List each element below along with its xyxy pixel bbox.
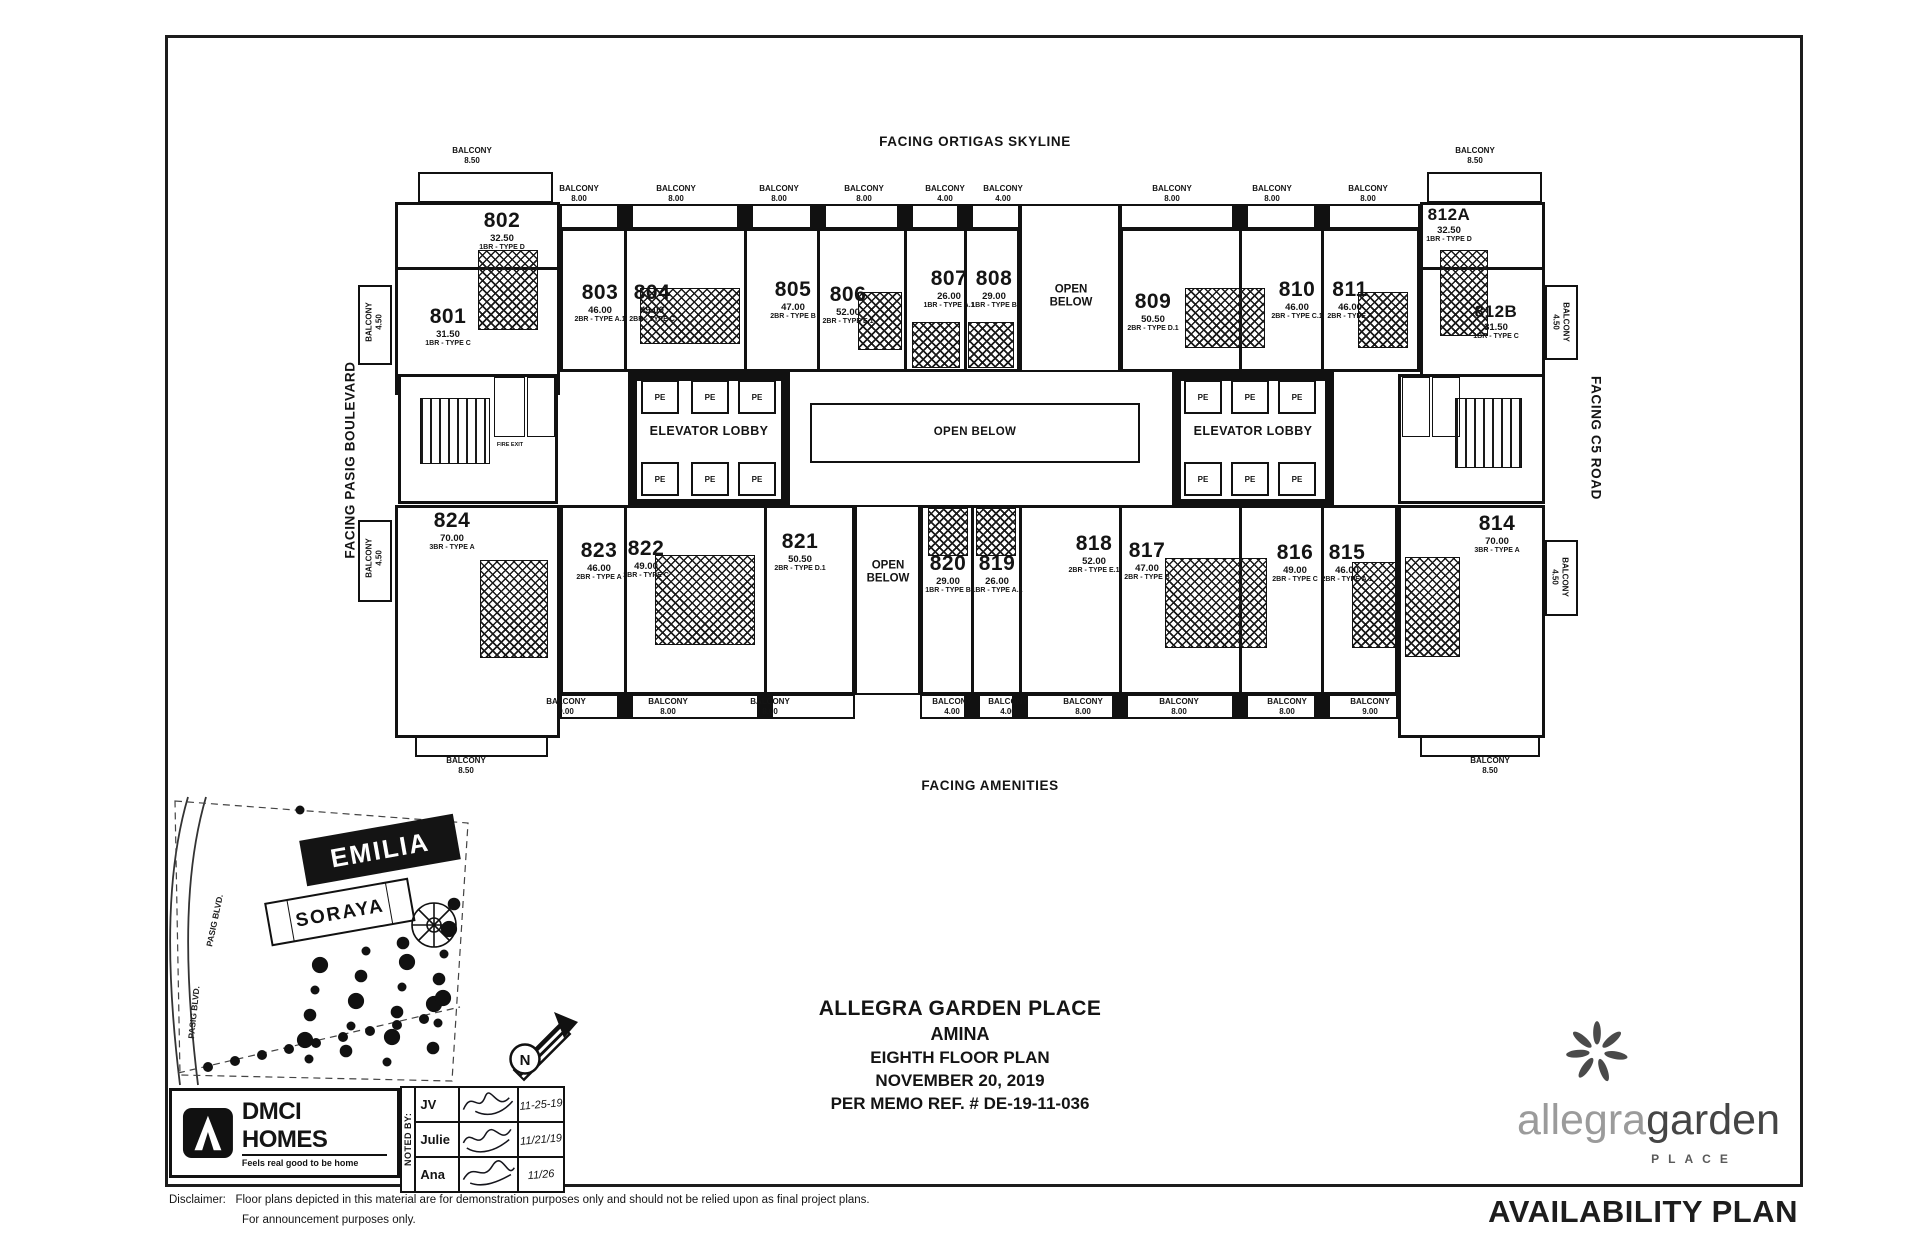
unit-divider-wall [764, 505, 767, 695]
tree-dot [311, 986, 320, 995]
balcony-word: BALCONY [546, 697, 586, 707]
unit-label-814: 81470.003BR - TYPE A [1474, 513, 1519, 555]
balcony-word: BALCONY [1455, 146, 1495, 156]
unit-area-sqm: 32.50 [1437, 225, 1461, 236]
unit-number: 805 [775, 279, 812, 300]
unit-label-823: 82346.002BR - TYPE A [576, 540, 621, 582]
unit-number: 809 [1135, 291, 1172, 312]
balcony-area-value: 8.00 [1152, 194, 1192, 204]
elevator-pe-cell-6: PE [1184, 380, 1222, 414]
noted-date: 11/21/19 [516, 1120, 565, 1159]
balcony-area-value: 8.00 [844, 194, 884, 204]
brand-wordmark: allegragarden [1400, 1096, 1786, 1145]
open-below-void-bottom [855, 505, 920, 695]
balcony-area-value: 8.00 [750, 707, 790, 717]
unit-area-sqm: 26.00 [985, 576, 1009, 587]
project-name: ALLEGRA GARDEN PLACE [750, 996, 1170, 1022]
balcony-word: BALCONY [1348, 184, 1388, 194]
unit-label-806: 80652.002BR - TYPE E.1 [823, 284, 874, 326]
unit-label-808: 80829.001BR - TYPE B [971, 268, 1017, 310]
balcony-area-value: 8.00 [1063, 707, 1103, 717]
facing-top-label: FACING ORTIGAS SKYLINE [879, 134, 1071, 149]
open-below-center-label: OPEN BELOW [934, 426, 1017, 438]
wall-pier [1314, 204, 1330, 228]
wall-pier [1232, 204, 1248, 228]
disclaimer-label: Disclaimer: [169, 1194, 226, 1206]
fixture-hatch [1185, 288, 1265, 348]
brand-allegra: allegra [1517, 1096, 1646, 1144]
unit-area-sqm: 49.00 [1283, 565, 1307, 576]
unit-label-817: 81747.002BR - TYPE B [1124, 540, 1170, 582]
balcony-strip-bottom-left-wing [560, 694, 855, 719]
unit-type: 2BR - TYPE A.1 [1321, 576, 1372, 584]
balcony-label-bottom-10: BALCONY8.50 [1470, 756, 1510, 775]
balcony-label-top-3: BALCONY8.00 [759, 184, 799, 203]
unit-label-804: 80449.002BR - TYPE C [629, 282, 675, 324]
unit-area-sqm: 70.00 [1485, 536, 1509, 547]
balcony-strip-814 [1420, 736, 1540, 757]
balcony-area-value: 8.50 [1455, 156, 1495, 166]
facing-right-label: FACING C5 ROAD [1589, 376, 1604, 500]
road-label: PASIG BLVD. [186, 985, 201, 1039]
tree-dot [296, 806, 305, 815]
unit-label-810: 81046.002BR - TYPE C.1 [1271, 279, 1322, 321]
unit-number: 804 [634, 282, 671, 303]
unit-type: 2BR - TYPE B [1124, 574, 1170, 582]
tree-dot [312, 957, 328, 973]
unit-label-818: 81852.002BR - TYPE E.1 [1069, 533, 1120, 575]
balcony-label-top-0: BALCONY8.50 [452, 146, 492, 165]
balcony-word: BALCONY [1159, 697, 1199, 707]
dmci-name: DMCI HOMES [242, 1098, 387, 1156]
tree-dot [297, 1032, 313, 1048]
balcony-label-top-5: BALCONY4.00 [925, 184, 965, 203]
balcony-strip-824 [415, 736, 548, 757]
balcony-label-bottom-1: BALCONY9.00 [546, 697, 586, 716]
unit-number: 822 [628, 538, 665, 559]
dmci-logo-block: DMCI HOMES Feels real good to be home [169, 1088, 400, 1178]
open-below-top-label: OPEN BELOW [1050, 284, 1093, 309]
balcony-area-value: 4.00 [932, 707, 972, 717]
balcony-word: BALCONY [452, 146, 492, 156]
balcony-label-bottom-0: BALCONY8.50 [446, 756, 486, 775]
unit-type: 1BR - TYPE C [1473, 333, 1519, 341]
balcony-word: BALCONY [1152, 184, 1192, 194]
stair-hatch [1455, 398, 1522, 468]
elevator-pe-cell-8: PE [1278, 380, 1316, 414]
wall-pier [1232, 695, 1248, 718]
balcony-label-top-10: BALCONY8.50 [1455, 146, 1495, 165]
unit-area-sqm: 46.00 [1338, 302, 1362, 313]
balcony-area-value: 4.00 [983, 194, 1023, 204]
unit-label-802: 80232.501BR - TYPE D [479, 210, 525, 252]
unit-number: 820 [930, 553, 967, 574]
unit-number: 807 [931, 268, 968, 289]
balcony-area-value: 8.50 [452, 156, 492, 166]
balcony-area-value: 8.00 [1252, 194, 1292, 204]
balcony-area-value: 8.00 [1348, 194, 1388, 204]
balcony-strip-802 [418, 172, 553, 203]
balcony-word: BALCONY [1350, 697, 1390, 707]
balcony-area-value: 8.00 [1267, 707, 1307, 717]
unit-label-822: 82249.002BR - TYPE C [623, 538, 669, 580]
balcony-word: BALCONY [983, 184, 1023, 194]
unit-number: 812A [1428, 206, 1471, 223]
unit-type: 1BR - TYPE C [425, 340, 471, 348]
noted-name: Julie [415, 1122, 459, 1157]
unit-number: 812B [1475, 303, 1518, 320]
unit-label-816: 81649.002BR - TYPE C [1272, 542, 1318, 584]
balcony-word: BALCONY [932, 697, 972, 707]
unit-type: 2BR - TYPE E.1 [823, 318, 874, 326]
balcony-label-top-6: BALCONY4.00 [983, 184, 1023, 203]
tree-dot [257, 1050, 267, 1060]
balcony-word: BALCONY [1063, 697, 1103, 707]
dmci-tagline: Feels real good to be home [242, 1158, 387, 1168]
elevator-pe-cell-3: PE [641, 462, 679, 496]
stair-hatch [420, 398, 490, 464]
unit-type: 2BR - TYPE C [629, 316, 675, 324]
balcony-area-value: 8.00 [559, 194, 599, 204]
wall-pier [617, 695, 633, 718]
unit-divider-wall [904, 228, 907, 372]
unit-label-805: 80547.002BR - TYPE B [770, 279, 816, 321]
unit-number: 821 [782, 531, 819, 552]
elevator-pe-cell-5: PE [738, 462, 776, 496]
noted-date: 11-25-19 [516, 1085, 565, 1124]
unit-area-sqm: 46.00 [587, 563, 611, 574]
unit-number: 814 [1479, 513, 1516, 534]
unit-area-sqm: 47.00 [781, 302, 805, 313]
unit-area-sqm: 70.00 [440, 533, 464, 544]
tree-dot [398, 983, 407, 992]
fixture-hatch [478, 250, 538, 330]
unit-label-811: 81146.002BR - TYPE A [1327, 279, 1372, 321]
fixture-hatch [928, 508, 968, 556]
road-line [188, 797, 206, 1085]
dmci-logo-icon [182, 1106, 234, 1160]
balcony-word: BALCONY [750, 697, 790, 707]
tree-dot [440, 950, 449, 959]
fire-exit-label: FIRE EXIT [492, 442, 528, 448]
allegra-leaf-icon [1565, 1020, 1629, 1084]
wall-pier [957, 204, 973, 228]
unit-number: 803 [582, 282, 619, 303]
tree-dot [383, 1058, 392, 1067]
road-label: PASIG BLVD. [204, 893, 225, 947]
tree-dot [435, 990, 451, 1006]
balcony-area-value: 4.00 [988, 707, 1028, 717]
unit-label-812A: 812A32.501BR - TYPE D [1426, 206, 1472, 244]
balcony-word: BALCONY [446, 756, 486, 766]
balcony-label-side-0: BALCONY4.50 [365, 302, 384, 342]
facing-left-label: FACING PASIG BOULEVARD [343, 361, 358, 558]
tree-dot [311, 1038, 321, 1048]
unit-number: 818 [1076, 533, 1113, 554]
balcony-strip-812a [1427, 172, 1542, 203]
balcony-label-top-4: BALCONY8.00 [844, 184, 884, 203]
unit-label-812B: 812B31.501BR - TYPE C [1473, 303, 1519, 341]
balcony-label-bottom-3: BALCONY8.00 [750, 697, 790, 716]
balcony-word: BALCONY [988, 697, 1028, 707]
balcony-label-bottom-9: BALCONY9.00 [1350, 697, 1390, 716]
unit-area-sqm: 46.00 [1335, 565, 1359, 576]
unit-number: 819 [979, 553, 1016, 574]
balcony-label-top-2: BALCONY8.00 [656, 184, 696, 203]
unit-type: 1BR - TYPE D [479, 244, 525, 252]
plan-date: NOVEMBER 20, 2019 [750, 1069, 1170, 1092]
balcony-word: BALCONY [1561, 302, 1571, 342]
fixture-hatch [912, 322, 960, 368]
unit-divider-wall [817, 228, 820, 372]
unit-area-sqm: 52.00 [1082, 556, 1106, 567]
north-compass: N [498, 1002, 582, 1086]
unit-type: 2BR - TYPE A.1 [574, 316, 625, 324]
unit-label-820: 82029.001BR - TYPE B [925, 553, 971, 595]
balcony-word: BALCONY [1560, 557, 1570, 597]
unit-divider-wall [1019, 505, 1022, 695]
elevator-pe-cell-9: PE [1184, 462, 1222, 496]
unit-type: 1BR - TYPE D [1426, 236, 1472, 244]
disclaimer-line2: For announcement purposes only. [242, 1210, 1069, 1230]
balcony-label-top-1: BALCONY8.00 [559, 184, 599, 203]
balcony-area-value: 8.50 [446, 766, 486, 776]
unit-type: 2BR - TYPE C.1 [1271, 313, 1322, 321]
unit-area-sqm: 26.00 [937, 291, 961, 302]
balcony-label-bottom-5: BALCONY4.00 [988, 697, 1028, 716]
unit-divider-wall [624, 505, 627, 695]
balcony-label-top-9: BALCONY8.00 [1348, 184, 1388, 203]
wall-pier [617, 204, 633, 228]
signature-cell [459, 1087, 518, 1122]
wall-pier [897, 204, 913, 228]
unit-type: 2BR - TYPE A [576, 574, 621, 582]
unit-type: 2BR - TYPE C [623, 572, 669, 580]
noted-by-label: NOTED BY: [401, 1087, 415, 1192]
unit-area-sqm: 46.00 [588, 305, 612, 316]
tree-dot [340, 1045, 353, 1058]
unit-number: 817 [1129, 540, 1166, 561]
fixture-hatch [976, 508, 1016, 556]
elevator-pe-cell-2: PE [738, 380, 776, 414]
wall-pier [1314, 695, 1330, 718]
wall-pier [810, 204, 826, 228]
unit-area-sqm: 31.50 [1484, 322, 1508, 333]
elevator-pe-cell-4: PE [691, 462, 729, 496]
elevator-lobby-right-label: ELEVATOR LOBBY [1194, 424, 1313, 438]
tower-name: AMINA [750, 1022, 1170, 1046]
elevator-pe-cell-11: PE [1278, 462, 1316, 496]
memo-reference: PER MEMO REF. # DE-19-11-036 [750, 1092, 1170, 1115]
tree-dot [365, 1026, 375, 1036]
unit-area-sqm: 29.00 [982, 291, 1006, 302]
unit-area-sqm: 31.50 [436, 329, 460, 340]
unit-divider-wall [971, 505, 974, 695]
balcony-area-value: 4.50 [1552, 302, 1562, 342]
tree-dot [448, 898, 461, 911]
unit-area-sqm: 46.00 [1285, 302, 1309, 313]
balcony-area-value: 4.50 [374, 302, 384, 342]
utility-room [494, 377, 525, 437]
floor-plan-title: EIGHTH FLOOR PLAN [750, 1046, 1170, 1069]
building-emilia: EMILIA [299, 814, 461, 886]
availability-plan-title: AVAILABILITY PLAN [1488, 1194, 1798, 1230]
unit-number: 806 [830, 284, 867, 305]
elevator-pe-cell-1: PE [691, 380, 729, 414]
tree-dot [230, 1056, 240, 1066]
fixture-hatch [1405, 557, 1460, 657]
tree-dot [399, 954, 415, 970]
unit-number: 810 [1279, 279, 1316, 300]
tree-dot [427, 1042, 440, 1055]
tree-dot [362, 947, 371, 956]
unit-label-801: 80131.501BR - TYPE C [425, 306, 471, 348]
unit-type: 2BR - TYPE A [1327, 313, 1372, 321]
tree-dot [348, 993, 364, 1009]
unit-area-sqm: 32.50 [490, 233, 514, 244]
balcony-label-bottom-4: BALCONY4.00 [932, 697, 972, 716]
unit-number: 801 [430, 306, 467, 327]
unit-number: 808 [976, 268, 1013, 289]
balcony-label-bottom-8: BALCONY8.00 [1267, 697, 1307, 716]
compass-n: N [520, 1052, 531, 1069]
brand-garden: garden [1646, 1096, 1780, 1144]
tree-dot [419, 1014, 429, 1024]
unit-type: 3BR - TYPE A [1474, 547, 1519, 555]
wall-pier [737, 204, 753, 228]
wall-pier [1112, 695, 1128, 718]
unit-type: 2BR - TYPE B [770, 313, 816, 321]
balcony-word: BALCONY [925, 184, 965, 194]
signature-cell [459, 1157, 518, 1192]
tree-dot [355, 970, 368, 983]
balcony-area-value: 9.00 [546, 707, 586, 717]
open-below-bottom-label: OPEN BELOW [867, 560, 910, 585]
elevator-lobby-left-label: ELEVATOR LOBBY [650, 424, 769, 438]
fixture-hatch [655, 555, 755, 645]
unit-divider-wall [1321, 505, 1324, 695]
tree-dot [391, 1006, 404, 1019]
balcony-word: BALCONY [1252, 184, 1292, 194]
unit-divider-wall [744, 228, 747, 372]
balcony-area-value: 4.50 [1551, 557, 1561, 597]
unit-area-sqm: 52.00 [836, 307, 860, 318]
balcony-area-value: 4.50 [374, 538, 384, 578]
balcony-label-side-1: BALCONY4.50 [1552, 302, 1571, 342]
balcony-word: BALCONY [759, 184, 799, 194]
fixture-hatch [1165, 558, 1267, 648]
unit-area-sqm: 50.50 [1141, 314, 1165, 325]
balcony-word: BALCONY [559, 184, 599, 194]
balcony-label-bottom-2: BALCONY8.00 [648, 697, 688, 716]
disclaimer: Disclaimer: Floor plans depicted in this… [169, 1190, 1069, 1230]
availability-plan-sheet: FACING ORTIGAS SKYLINE FACING AMENITIES … [0, 0, 1920, 1256]
signature-scribble [460, 1158, 516, 1186]
noted-by-table: NOTED BY: JV 11-25-19 Julie 11/21/19 Ana [400, 1086, 565, 1193]
balcony-area-value: 8.00 [656, 194, 696, 204]
noted-name: JV [415, 1087, 459, 1122]
title-block: ALLEGRA GARDEN PLACE AMINA EIGHTH FLOOR … [750, 996, 1170, 1115]
unit-label-819: 81926.001BR - TYPE A.1 [971, 553, 1022, 595]
building-soraya: SORAYA [265, 879, 414, 945]
tree-dot [441, 921, 457, 937]
balcony-label-side-2: BALCONY4.50 [365, 538, 384, 578]
unit-label-824: 82470.003BR - TYPE A [429, 510, 474, 552]
facing-bottom-label: FACING AMENITIES [921, 778, 1058, 793]
tree-dot [433, 973, 446, 986]
balcony-word: BALCONY [648, 697, 688, 707]
unit-type: 1BR - TYPE B [925, 587, 971, 595]
signature-cell [459, 1122, 518, 1157]
unit-label-809: 80950.502BR - TYPE D.1 [1127, 291, 1178, 333]
tree-dot [284, 1044, 294, 1054]
tree-dot [384, 1029, 400, 1045]
brand-place: PLACE [1614, 1152, 1774, 1166]
noted-date: 11/26 [516, 1155, 565, 1194]
unit-area-sqm: 29.00 [936, 576, 960, 587]
balcony-area-value: 8.00 [1159, 707, 1199, 717]
utility-room [527, 377, 555, 437]
unit-number: 824 [434, 510, 471, 531]
unit-area-sqm: 49.00 [634, 561, 658, 572]
unit-number: 823 [581, 540, 618, 561]
unit-area-sqm: 47.00 [1135, 563, 1159, 574]
tree-dot [304, 1009, 317, 1022]
balcony-word: BALCONY [844, 184, 884, 194]
elevator-pe-cell-7: PE [1231, 380, 1269, 414]
fixture-hatch [968, 322, 1014, 368]
unit-type: 2BR - TYPE D.1 [1127, 325, 1178, 333]
unit-area-sqm: 49.00 [640, 305, 664, 316]
fixture-hatch [480, 560, 548, 658]
unit-label-815: 81546.002BR - TYPE A.1 [1321, 542, 1372, 584]
site-map: EMILIA SORAYA PASIG BLVD. PASIG BLVD. [150, 795, 480, 1087]
balcony-label-top-7: BALCONY8.00 [1152, 184, 1192, 203]
balcony-word: BALCONY [1470, 756, 1510, 766]
unit-number: 816 [1277, 542, 1314, 563]
elevator-pe-cell-10: PE [1231, 462, 1269, 496]
unit-type: 2BR - TYPE E.1 [1069, 567, 1120, 575]
unit-area-sqm: 50.50 [788, 554, 812, 565]
balcony-area-value: 8.50 [1470, 766, 1510, 776]
unit-number: 811 [1332, 279, 1367, 300]
balcony-word: BALCONY [365, 302, 375, 342]
tree-dot [434, 1019, 443, 1028]
balcony-area-value: 8.00 [759, 194, 799, 204]
tree-dot [305, 1055, 314, 1064]
balcony-label-side-3: BALCONY4.50 [1551, 557, 1570, 597]
signature-scribble [460, 1123, 516, 1151]
unit-type: 1BR - TYPE B [971, 302, 1017, 310]
unit-label-807: 80726.001BR - TYPE A.1 [923, 268, 974, 310]
unit-number: 815 [1329, 542, 1366, 563]
balcony-area-value: 4.00 [925, 194, 965, 204]
unit-type: 2BR - TYPE D.1 [774, 565, 825, 573]
balcony-strip-top-right-wing [1120, 204, 1420, 229]
balcony-word: BALCONY [656, 184, 696, 194]
unit-type: 2BR - TYPE C [1272, 576, 1318, 584]
balcony-area-value: 9.00 [1350, 707, 1390, 717]
tree-dot [203, 1062, 213, 1072]
balcony-label-top-8: BALCONY8.00 [1252, 184, 1292, 203]
utility-room [1402, 377, 1430, 437]
unit-label-821: 82150.502BR - TYPE D.1 [774, 531, 825, 573]
balcony-label-bottom-6: BALCONY8.00 [1063, 697, 1103, 716]
tree-dot [347, 1022, 356, 1031]
noted-name: Ana [415, 1157, 459, 1192]
unit-type: 1BR - TYPE A.1 [971, 587, 1022, 595]
balcony-label-bottom-7: BALCONY8.00 [1159, 697, 1199, 716]
